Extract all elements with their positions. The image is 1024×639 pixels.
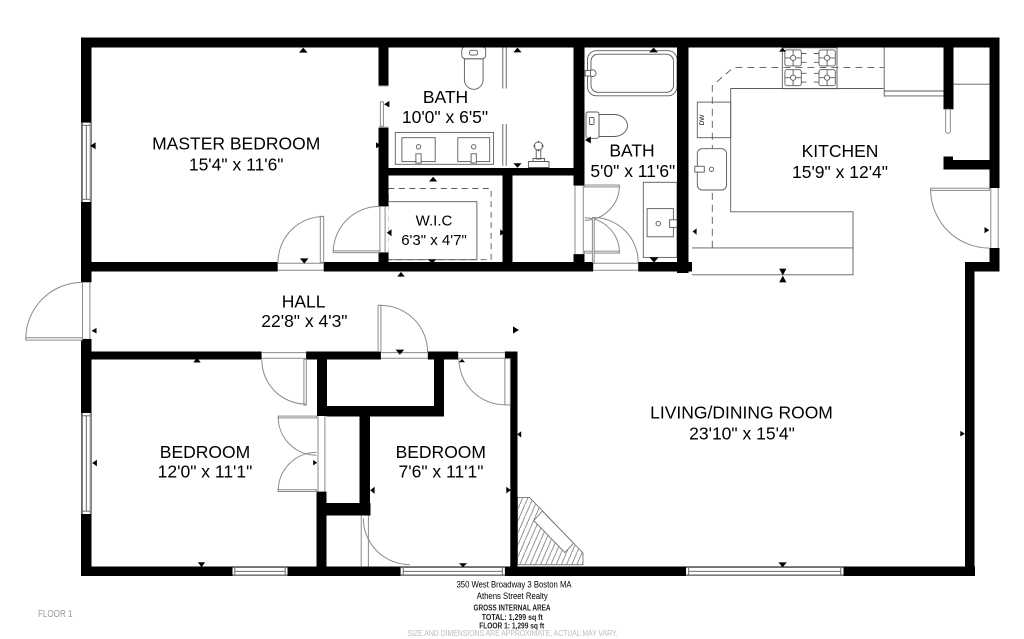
svg-text:BEDROOM: BEDROOM <box>160 442 250 462</box>
svg-text:BATH: BATH <box>609 140 654 160</box>
svg-text:KITCHEN: KITCHEN <box>802 141 879 161</box>
svg-text:GROSS INTERNAL AREA: GROSS INTERNAL AREA <box>474 604 551 613</box>
svg-text:15'9" x 12'4": 15'9" x 12'4" <box>792 162 888 182</box>
svg-text:10'0" x 6'5": 10'0" x 6'5" <box>402 107 488 127</box>
svg-text:HALL: HALL <box>282 292 326 312</box>
svg-text:12'0" x 11'1": 12'0" x 11'1" <box>158 462 253 482</box>
svg-text:23'10" x 15'4": 23'10" x 15'4" <box>689 424 795 444</box>
svg-text:5'0" x 11'6": 5'0" x 11'6" <box>590 161 675 181</box>
svg-text:BATH: BATH <box>423 87 468 107</box>
svg-text:7'6" x 11'1": 7'6" x 11'1" <box>399 462 484 482</box>
svg-text:6'3" x 4'7": 6'3" x 4'7" <box>401 232 467 249</box>
svg-text:SIZE AND DIMENSIONS ARE APPROX: SIZE AND DIMENSIONS ARE APPROXIMATE, ACT… <box>408 628 618 638</box>
svg-text:Athens Street Realty: Athens Street Realty <box>477 591 548 601</box>
svg-text:BEDROOM: BEDROOM <box>396 442 486 462</box>
svg-text:22'8" x 4'3": 22'8" x 4'3" <box>261 311 347 331</box>
svg-text:15'4" x 11'6": 15'4" x 11'6" <box>189 155 284 175</box>
svg-text:LIVING/DINING ROOM: LIVING/DINING ROOM <box>650 403 833 423</box>
svg-text:W.I.C: W.I.C <box>416 212 453 229</box>
svg-text:350 West Broadway 3 Boston MA: 350 West Broadway 3 Boston MA <box>457 580 572 590</box>
svg-text:MASTER BEDROOM: MASTER BEDROOM <box>152 134 320 154</box>
svg-text:DW: DW <box>699 114 706 126</box>
svg-text:FLOOR 1: FLOOR 1 <box>38 609 73 620</box>
